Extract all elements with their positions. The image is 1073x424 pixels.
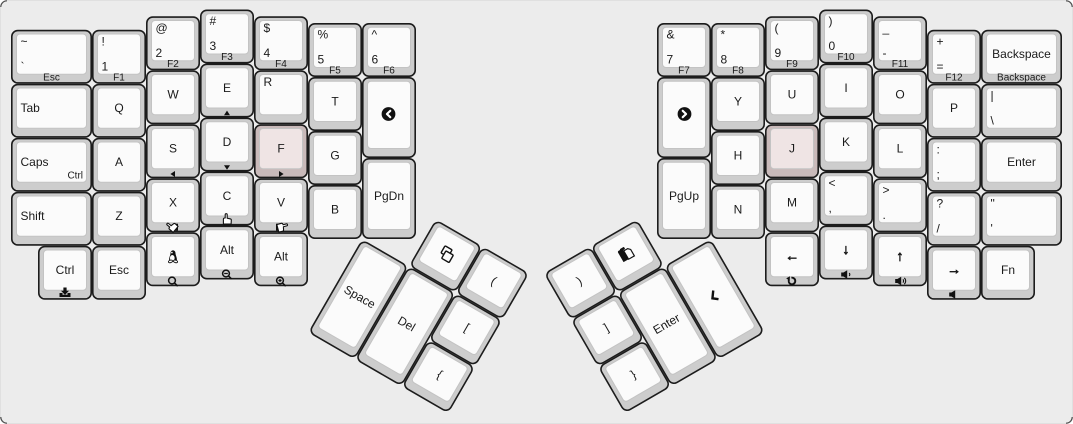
svg-text:↑: ↑ (897, 248, 904, 264)
svg-text:Enter: Enter (1007, 155, 1036, 169)
svg-text:PgDn: PgDn (374, 189, 404, 203)
svg-text:F: F (277, 142, 284, 156)
svg-text:W: W (167, 88, 179, 102)
svg-text:^: ^ (372, 28, 378, 42)
svg-text:~: ~ (21, 34, 28, 48)
svg-text:2: 2 (156, 46, 163, 60)
svg-text:F11: F11 (892, 59, 909, 70)
svg-text:F6: F6 (383, 66, 395, 77)
svg-text:>: > (883, 183, 890, 197)
svg-text:<: < (829, 176, 836, 190)
svg-text:N: N (734, 202, 743, 216)
svg-text:=: = (937, 59, 944, 73)
svg-text:4: 4 (264, 46, 271, 60)
svg-text:Caps: Caps (21, 155, 49, 169)
svg-text:Fn: Fn (1001, 263, 1015, 277)
svg-text:Z: Z (115, 209, 122, 223)
svg-text:,: , (829, 201, 832, 215)
svg-text:F8: F8 (732, 66, 744, 77)
svg-text:P: P (950, 101, 958, 115)
svg-text:;: ; (937, 167, 940, 181)
svg-text:F9: F9 (786, 59, 798, 70)
svg-text:K: K (842, 135, 850, 149)
svg-text:%: % (318, 28, 329, 42)
svg-text:R: R (264, 75, 273, 89)
svg-text:Backspace: Backspace (997, 72, 1046, 83)
svg-text:G: G (330, 148, 339, 162)
svg-text:Backspace: Backspace (992, 47, 1051, 61)
svg-text:+: + (937, 34, 944, 48)
svg-text:$: $ (264, 21, 271, 35)
svg-text:F10: F10 (837, 52, 855, 63)
svg-text:→: → (947, 261, 961, 277)
svg-text:F7: F7 (678, 66, 690, 77)
svg-text:F12: F12 (945, 72, 963, 83)
svg-text:5: 5 (318, 53, 325, 67)
svg-text:C: C (223, 189, 232, 203)
svg-text:↓: ↓ (843, 241, 850, 257)
svg-text:(: ( (775, 21, 779, 35)
svg-text:?: ? (937, 196, 944, 210)
svg-text:H: H (734, 148, 743, 162)
svg-text:`: ` (21, 59, 25, 73)
svg-text:#: # (210, 14, 217, 28)
svg-text:F1: F1 (113, 72, 125, 83)
svg-text:M: M (787, 196, 797, 210)
svg-text:7: 7 (667, 53, 674, 67)
svg-text:Shift: Shift (21, 209, 46, 223)
svg-text:3: 3 (210, 39, 217, 53)
svg-text:@: @ (156, 21, 168, 35)
svg-text:U: U (788, 88, 797, 102)
svg-text:": " (991, 196, 995, 210)
svg-text:A: A (115, 155, 123, 169)
svg-text:F5: F5 (329, 66, 341, 77)
svg-text:←: ← (785, 248, 799, 264)
svg-text:Y: Y (734, 94, 742, 108)
svg-text:T: T (331, 94, 339, 108)
svg-text:E: E (223, 81, 231, 95)
svg-text:&: & (667, 28, 675, 42)
svg-text:.: . (883, 208, 886, 222)
svg-text:Tab: Tab (21, 101, 41, 115)
svg-text:9: 9 (775, 46, 782, 60)
svg-text:Esc: Esc (43, 72, 60, 83)
svg-text:Alt: Alt (220, 243, 235, 257)
svg-text:F4: F4 (275, 59, 287, 70)
svg-text:*: * (721, 28, 726, 42)
svg-text:Ctrl: Ctrl (67, 170, 83, 181)
svg-text:': ' (991, 221, 993, 235)
svg-text:X: X (169, 196, 177, 210)
svg-text:D: D (223, 135, 232, 149)
svg-text:-: - (883, 46, 887, 60)
svg-text:Q: Q (114, 101, 123, 115)
svg-text:|: | (991, 88, 994, 102)
svg-text:): ) (829, 14, 833, 28)
svg-text:S: S (169, 142, 177, 156)
svg-text:J: J (789, 142, 795, 156)
svg-text:Ctrl: Ctrl (56, 263, 75, 277)
svg-text:F3: F3 (221, 52, 233, 63)
svg-text:Esc: Esc (109, 263, 129, 277)
svg-text:B: B (331, 202, 339, 216)
svg-text:0: 0 (829, 39, 836, 53)
svg-text:PgUp: PgUp (669, 189, 699, 203)
svg-text:O: O (895, 88, 904, 102)
svg-text:V: V (277, 196, 285, 210)
svg-text:!: ! (102, 34, 105, 48)
svg-text:Alt: Alt (274, 250, 289, 264)
svg-text:_: _ (882, 21, 890, 35)
svg-text:6: 6 (372, 53, 379, 67)
svg-text:I: I (844, 81, 847, 95)
svg-text::: : (937, 142, 940, 156)
svg-text:F2: F2 (167, 59, 179, 70)
svg-text:8: 8 (721, 53, 728, 67)
svg-text:L: L (897, 142, 904, 156)
svg-text:1: 1 (102, 59, 109, 73)
